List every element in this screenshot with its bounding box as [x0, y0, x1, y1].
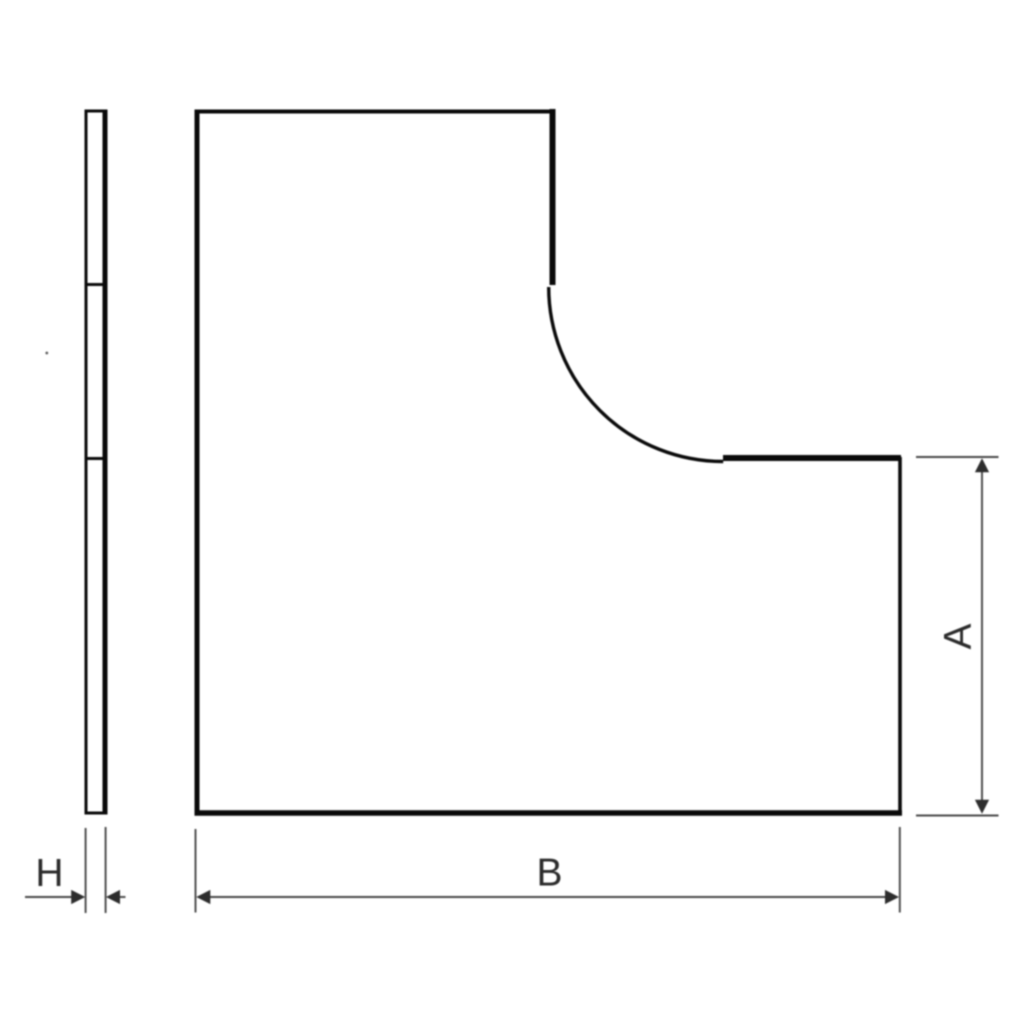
svg-text:B: B — [536, 852, 562, 895]
svg-text:A: A — [937, 623, 980, 649]
svg-text:H: H — [35, 852, 63, 895]
